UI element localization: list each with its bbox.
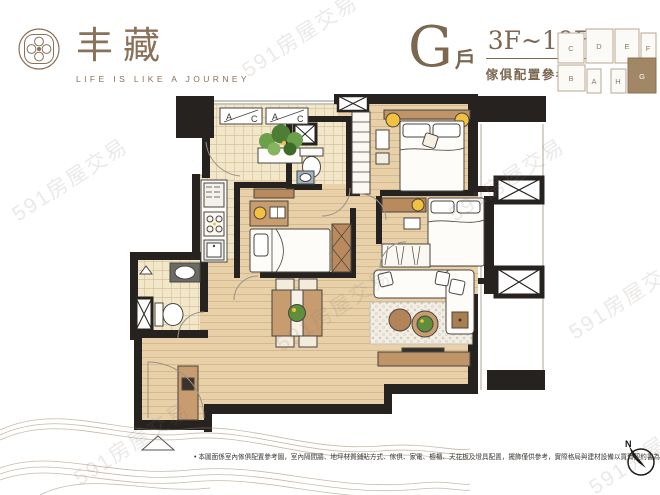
master-wardrobe <box>352 112 370 194</box>
tv-console <box>378 352 470 366</box>
floor-plan: A C A C <box>130 94 546 450</box>
disclaimer-bullet: • <box>194 454 196 461</box>
tv <box>402 348 444 352</box>
keyplan-and-plan-layer: C D E F B A H G <box>0 0 660 495</box>
coffee-table-small <box>389 309 411 331</box>
master-bed <box>400 121 464 191</box>
bedroom3-stool <box>404 218 420 229</box>
keyplan-label-e: E <box>624 42 629 51</box>
dining-chair-2 <box>299 279 317 290</box>
master-stool <box>376 153 389 164</box>
ac-hatch-top <box>338 96 368 111</box>
keyplan-label-g: G <box>639 72 645 81</box>
ac-box1-label-c: C <box>251 114 258 124</box>
sink-1 <box>297 171 314 184</box>
shaft-right-lower <box>496 268 542 296</box>
bedroom2-bed <box>250 229 330 272</box>
disclaimer-text: 本圖面係室內傢俱配置參考圖，室內隔間牆、地坪材質鋪貼方式、傢俱、家電、櫥櫃、天花… <box>198 454 660 461</box>
bedroom3-lamp <box>412 199 424 211</box>
floorplan-page: 丰藏 LIFE IS LIKE A JOURNEY G 戶 3F~19F 傢俱配… <box>0 0 660 495</box>
stove <box>204 212 224 236</box>
bedroom2-wardrobe <box>332 224 351 272</box>
toilet-2 <box>155 303 183 326</box>
compass-label: N <box>625 439 632 449</box>
keyplan-label-b: B <box>568 74 573 83</box>
disclaimer: •本圖面係室內傢俱配置參考圖，室內隔間牆、地坪材質鋪貼方式、傢俱、家電、櫥櫃、天… <box>194 451 656 461</box>
watermark: 591房屋交易 <box>565 252 660 344</box>
keyplan-label-d: D <box>596 42 602 51</box>
master-lamp-left <box>386 113 400 127</box>
bedroom2-dresser <box>254 189 294 198</box>
keyplan-label-h: H <box>615 77 620 86</box>
master-bench <box>376 130 389 149</box>
bedroom3-wardrobe <box>382 244 430 267</box>
shaft-bath2 <box>136 298 152 330</box>
ac-box2-label-c: C <box>297 114 304 124</box>
keyplan-label-a: A <box>591 77 596 86</box>
keyplan-label-c: C <box>568 44 574 53</box>
keyplan: C D E F B A H G <box>558 29 656 93</box>
living-plant <box>417 316 433 332</box>
bedroom2-desk <box>250 201 288 226</box>
ac-box1-label-a: A <box>226 112 232 122</box>
column-top-right <box>478 96 546 122</box>
kitchen <box>201 180 227 262</box>
sink-2 <box>170 263 200 282</box>
terrace-railing <box>206 101 338 104</box>
master-bedroom <box>352 110 470 194</box>
watermark: 591房屋交易 <box>8 134 132 226</box>
dining-chair-1 <box>276 279 294 290</box>
column-top-left <box>176 96 214 138</box>
keyplan-label-f: F <box>646 44 651 53</box>
kitchen-sink <box>204 240 224 260</box>
ac-box2-label-a: A <box>272 112 278 122</box>
watermark: 591房屋交易 <box>238 0 362 82</box>
